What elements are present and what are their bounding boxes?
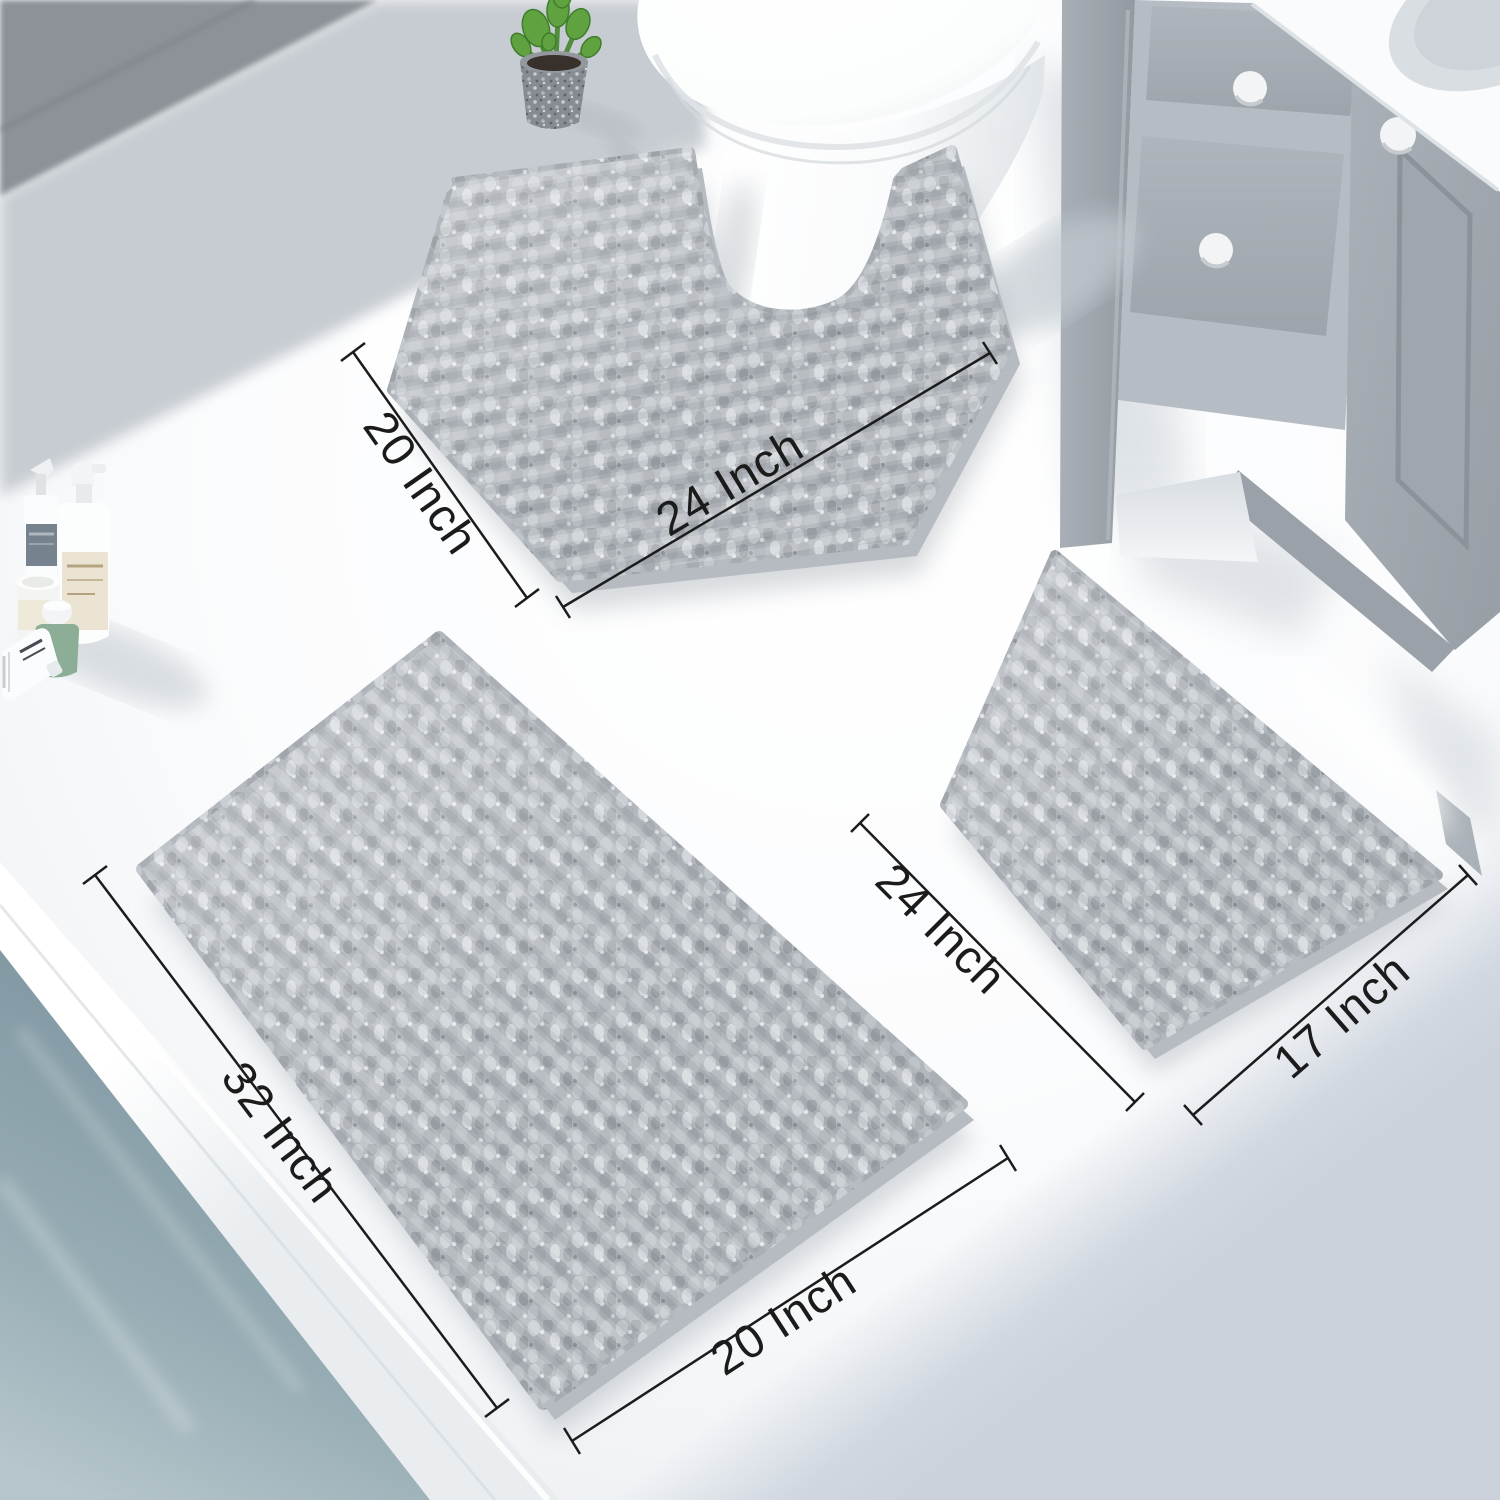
vanity-door-panel: [1398, 150, 1470, 545]
vanity-drawer-2: [1130, 136, 1344, 336]
product-photo-bathroom-scene: 20 Inch 24 Inch 32 Inch 20 Inch 24 Inch …: [0, 0, 1500, 1500]
pot-soil: [527, 55, 581, 71]
